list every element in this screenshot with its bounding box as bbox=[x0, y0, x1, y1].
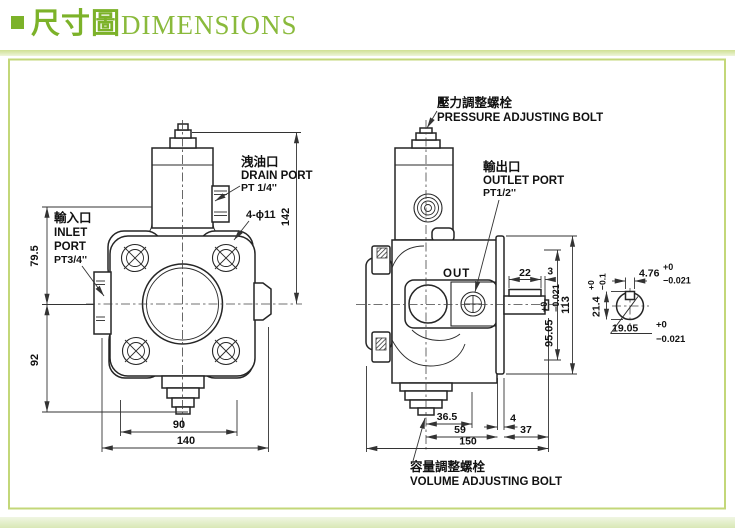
dim-95-05-label: 95.05 bbox=[544, 319, 556, 347]
shaft-key bbox=[509, 290, 541, 297]
outlet-port-label-cjk: 輸出口 bbox=[483, 159, 521, 174]
drain-port-label-en: DRAIN PORT bbox=[241, 170, 313, 182]
dim-59-label: 59 bbox=[454, 424, 466, 436]
outlet-boss-front bbox=[254, 283, 271, 320]
outlet-port-size-label: PT1/2'' bbox=[483, 187, 516, 199]
pressure-bolt-label-en: PRESSURE ADJUSTING BOLT bbox=[437, 112, 603, 124]
dim-140-label: 140 bbox=[177, 435, 195, 447]
drain-port-size-label: PT 1/4'' bbox=[241, 182, 277, 194]
mounting-holes-label: 4-ϕ11 bbox=[246, 209, 276, 221]
out-marking-label: OUT bbox=[443, 268, 470, 280]
inlet-port-label-cjk: 輸入口 bbox=[54, 210, 92, 225]
volume-bolt-label-en: VOLUME ADJUSTING BOLT bbox=[410, 476, 562, 488]
pressure-bolt-label-cjk: 壓力調整螺栓 bbox=[437, 95, 513, 110]
inlet-port-label-en2: PORT bbox=[54, 241, 86, 253]
dim-142-label: 142 bbox=[280, 208, 292, 226]
dim-21-4-label: 21.4 bbox=[591, 296, 603, 317]
inlet-port-label-en1: INLET bbox=[54, 227, 87, 239]
dim-4-76-tol-plus: +0 bbox=[663, 262, 673, 272]
drain-port-block bbox=[212, 186, 229, 222]
dim-4-label: 4 bbox=[510, 413, 516, 425]
mounting-flange bbox=[496, 236, 504, 374]
dim-79-5-label: 79.5 bbox=[29, 245, 41, 266]
outlet-port-label-en: OUTLET PORT bbox=[483, 175, 564, 187]
hatch-pad bbox=[377, 248, 387, 258]
dim-19-05-tol-plus: +0 bbox=[656, 320, 667, 331]
dimensions-page: 尺寸圖 DIMENSIONS bbox=[0, 0, 735, 528]
dim-90-label: 90 bbox=[173, 419, 185, 431]
dim-95-05-tol-plus: +0 bbox=[539, 302, 549, 312]
dim-113-label: 113 bbox=[560, 296, 572, 314]
dim-21-4-tol-minus: −0.1 bbox=[598, 273, 608, 290]
hatch-pad bbox=[376, 338, 386, 350]
dim-3-label: 3 bbox=[548, 267, 554, 278]
dim-19-05-label: 19.05 bbox=[612, 323, 638, 335]
dimension-drawing: 輸入口 INLET PORT PT3/4'' 洩油口 DRAIN PORT PT… bbox=[0, 0, 735, 528]
dim-4-76-label: 4.76 bbox=[639, 268, 660, 280]
dim-92-label: 92 bbox=[29, 354, 41, 366]
dim-36-5-label: 36.5 bbox=[437, 411, 458, 423]
dim-22-label: 22 bbox=[519, 267, 531, 279]
dim-4-76-tol-minus: −0.021 bbox=[663, 276, 691, 286]
inlet-port-block bbox=[94, 272, 111, 334]
keyway bbox=[626, 292, 635, 300]
volume-bolt-label-cjk: 容量調整螺栓 bbox=[409, 459, 486, 474]
dim-150-label: 150 bbox=[459, 436, 477, 448]
dim-37-label: 37 bbox=[520, 424, 532, 436]
dim-19-05-tol-minus: −0.021 bbox=[656, 334, 686, 345]
dim-21-4-tol-plus: +0 bbox=[586, 280, 596, 290]
drain-port-label-cjk: 洩油口 bbox=[241, 154, 279, 169]
front-top-bolt bbox=[170, 138, 196, 148]
side-port-face bbox=[405, 280, 497, 328]
inlet-port-size-label: PT3/4'' bbox=[54, 254, 87, 266]
